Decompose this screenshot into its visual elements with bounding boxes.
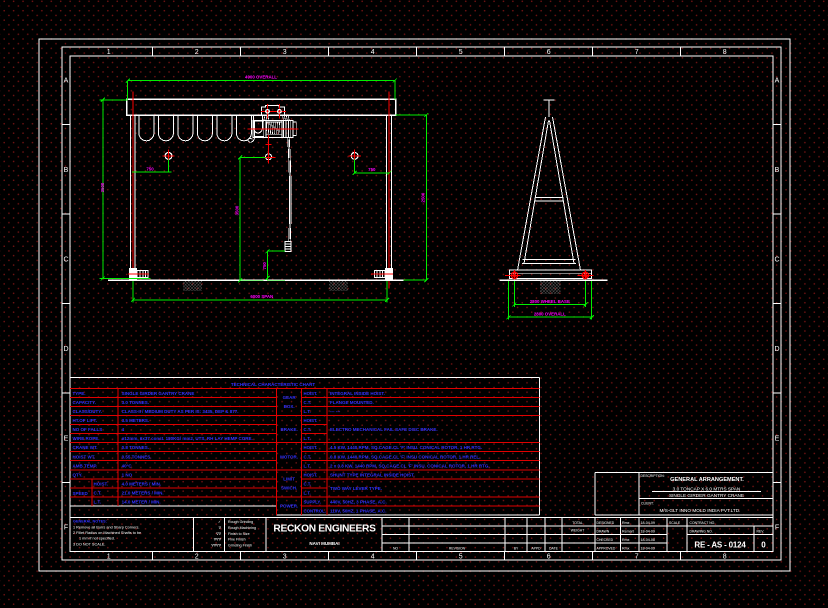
svg-text:7: 7 (635, 554, 639, 561)
svg-text:3.0 TONCAP X 6.0 MTRS SPAN: 3.0 TONCAP X 6.0 MTRS SPAN (673, 486, 741, 491)
svg-text:MOTOR.: MOTOR. (280, 454, 298, 459)
svg-text:C.T.: C.T. (304, 481, 312, 486)
svg-text:B: B (64, 167, 69, 174)
svg-text:NAVI MUMBAI: NAVI MUMBAI (309, 541, 339, 546)
svg-text:2800 WHEEL BASE: 2800 WHEEL BASE (530, 299, 570, 304)
svg-text:Fine Finish: Fine Finish (228, 538, 246, 542)
svg-text:2 x 0.8 KW, 1440 RPM, SQ.CAGE.: 2 x 0.8 KW, 1440 RPM, SQ.CAGE.CL 'F' INS… (330, 463, 490, 468)
svg-text:DESIGNED: DESIGNED (597, 521, 615, 525)
svg-text:3500: 3500 (235, 205, 240, 215)
svg-text:SINGLE GIRDER GANTRY CRANE: SINGLE GIRDER GANTRY CRANE (669, 493, 744, 498)
svg-text:SUPPLY.: SUPPLY. (304, 500, 322, 505)
svg-text:HOIST WT.: HOIST WT. (73, 454, 96, 459)
svg-text:21.0 METERS / MIN.: 21.0 METERS / MIN. (122, 490, 164, 495)
svg-text:APPD: APPD (531, 547, 541, 551)
svg-text:8: 8 (723, 554, 727, 561)
svg-text:INTEGRAL INSIDE HOIST.: INTEGRAL INSIDE HOIST. (330, 391, 385, 396)
svg-text:NO OF FALLS: NO OF FALLS (73, 427, 103, 432)
svg-text:CHECKED: CHECKED (597, 538, 614, 542)
svg-text:2: 2 (195, 554, 199, 561)
svg-text:LIMIT: LIMIT (283, 476, 295, 481)
svg-text:18-04-09: 18-04-09 (641, 521, 655, 525)
svg-text:110V, 50HZ, 1 PHASE, A.C.: 110V, 50HZ, 1 PHASE, A.C. (330, 509, 386, 514)
svg-text:✓: ✓ (218, 520, 221, 524)
svg-text:18-04-09: 18-04-09 (641, 529, 655, 533)
svg-text:1 Remove all Burrs and Sharp: 1 Remove all Burrs and Sharp Corners. (73, 526, 139, 530)
svg-text:8: 8 (723, 49, 727, 56)
svg-text:2500: 2500 (421, 192, 426, 202)
svg-text:E: E (775, 435, 780, 442)
svg-text:DRAWN: DRAWN (597, 529, 610, 533)
svg-text:1: 1 (107, 49, 111, 56)
svg-text:14.0 METER / MIN.: 14.0 METER / MIN. (122, 500, 161, 505)
svg-text:3: 3 (283, 49, 287, 56)
svg-text:CAPACITY.: CAPACITY. (73, 400, 96, 405)
svg-text:SCALE: SCALE (669, 521, 681, 525)
svg-text:C: C (774, 257, 779, 264)
svg-text:Rough Machining: Rough Machining (228, 526, 256, 530)
svg-text:BY: BY (514, 547, 519, 551)
svg-text:3.5 METERS.: 3.5 METERS. (122, 418, 150, 423)
svg-text:C.T.: C.T. (304, 400, 312, 405)
svg-text:M/S-GLT INNO MOLD INDIA PVT.LT: M/S-GLT INNO MOLD INDIA PVT.LTD. (659, 508, 740, 513)
svg-text:C: C (63, 257, 68, 264)
svg-text:Remart: Remart (622, 529, 634, 533)
svg-text:FLANGE MOUNTED.: FLANGE MOUNTED. (330, 400, 374, 405)
svg-text:L.T.: L.T. (304, 463, 311, 468)
svg-text:4900 OVERALL: 4900 OVERALL (245, 75, 277, 80)
svg-text:HOIST.: HOIST. (304, 418, 318, 423)
svg-text:CONTRACT NO.: CONTRACT NO. (690, 521, 716, 525)
svg-text:--- ---: --- --- (330, 409, 341, 414)
svg-text:CLASS/DUTY.: CLASS/DUTY. (73, 409, 103, 414)
svg-text:4.5 KW, 1440 RPM, SQ.CAGE.CL ': 4.5 KW, 1440 RPM, SQ.CAGE.CL 'F' INSU. C… (330, 445, 482, 450)
svg-text:A: A (64, 78, 69, 85)
svg-text:440V, 50HZ, 3 PHASE, A.C.: 440V, 50HZ, 3 PHASE, A.C. (330, 500, 387, 505)
svg-text:AMB TEMP.: AMB TEMP. (73, 463, 98, 468)
svg-text:BOX.: BOX. (284, 404, 295, 409)
svg-text:18-04-09: 18-04-09 (641, 547, 655, 551)
svg-text:TOTAL: TOTAL (572, 521, 583, 525)
svg-text:750: 750 (368, 167, 376, 172)
svg-text:DRAWING NO.: DRAWING NO. (690, 529, 713, 533)
svg-text:HT.OF LIFT.: HT.OF LIFT. (73, 418, 98, 423)
svg-text:1: 1 (107, 554, 111, 561)
svg-text:HOIST.: HOIST. (304, 445, 318, 450)
svg-text:RECKON ENGINEERS: RECKON ENGINEERS (273, 524, 376, 535)
svg-text:C.T.: C.T. (304, 454, 312, 459)
svg-text:0: 0 (761, 541, 766, 550)
svg-text:2: 2 (195, 49, 199, 56)
svg-text:0.8 KW, 1440 RPM, SQ.CAGE.CL ': 0.8 KW, 1440 RPM, SQ.CAGE.CL 'F' INSU CO… (330, 454, 480, 459)
svg-text:GENERAL ARRANGEMENT.: GENERAL ARRANGEMENT. (670, 477, 744, 483)
svg-text:WEIGHT: WEIGHT (571, 529, 585, 533)
svg-text:QTY.: QTY. (73, 472, 83, 477)
svg-text:6: 6 (547, 554, 551, 561)
svg-text:∇: ∇ (218, 526, 222, 530)
svg-text:GENERAL NOTES:: GENERAL NOTES: (73, 520, 107, 524)
svg-text:6: 6 (547, 49, 551, 56)
svg-text:D: D (63, 346, 68, 353)
svg-text:F: F (64, 525, 68, 532)
svg-text:3 DO NOT SCALE.: 3 DO NOT SCALE. (73, 542, 105, 546)
svg-text:18-04-08: 18-04-08 (641, 538, 655, 542)
svg-text:REVISION: REVISION (449, 547, 466, 551)
svg-text:40°C: 40°C (122, 463, 133, 468)
svg-text:750: 750 (146, 166, 154, 171)
svg-text:1 NO: 1 NO (122, 472, 133, 477)
svg-text:GEAR: GEAR (283, 395, 297, 400)
svg-text:Rough Grinding: Rough Grinding (228, 520, 253, 524)
svg-text:APPROVED: APPROVED (597, 547, 616, 551)
svg-text:HOIST.: HOIST. (94, 481, 109, 486)
svg-text:POWER.: POWER. (280, 504, 298, 509)
svg-text:A: A (775, 78, 780, 85)
svg-text:750: 750 (262, 262, 267, 270)
svg-text:2800 OVERALL: 2800 OVERALL (534, 312, 566, 317)
svg-text:5: 5 (459, 554, 463, 561)
svg-text:CLIENT:: CLIENT: (641, 501, 654, 505)
svg-text:4: 4 (371, 554, 375, 561)
svg-text:D: D (774, 346, 779, 353)
svg-text:3500: 3500 (100, 182, 105, 192)
svg-text:Grinding Finish: Grinding Finish (228, 543, 252, 547)
svg-text:3.0 TONNES.: 3.0 TONNES. (122, 400, 149, 405)
svg-text:0.8 TONNES.: 0.8 TONNES. (122, 445, 149, 450)
svg-text:0.55 TONNES.: 0.55 TONNES. (122, 454, 152, 459)
svg-text:L.T.: L.T. (94, 500, 102, 505)
svg-text:1 mm if not specified.: 1 mm if not specified. (79, 537, 115, 541)
svg-text:NO: NO (393, 547, 398, 551)
svg-text:TWO WAY LEVER TYPE.: TWO WAY LEVER TYPE. (330, 486, 382, 491)
svg-text:7: 7 (635, 49, 639, 56)
svg-text:TECHNICAL CHARACTERISTIC CHART: TECHNICAL CHARACTERISTIC CHART (231, 382, 315, 387)
svg-text:6000 SPAN: 6000 SPAN (250, 294, 273, 299)
svg-text:DESCRIPTION:: DESCRIPTION: (641, 474, 665, 478)
svg-text:3: 3 (283, 554, 287, 561)
svg-text:BRAKE.: BRAKE. (280, 427, 297, 432)
svg-text:SPEED: SPEED (73, 491, 89, 496)
svg-text:∇∇∇∇: ∇∇∇∇ (210, 543, 221, 547)
svg-text:TYPE.: TYPE. (73, 391, 86, 396)
svg-text:CONTROL.: CONTROL. (304, 509, 326, 514)
svg-text:CLASS-II / MEDIUM DUTY AS PER: CLASS-II / MEDIUM DUTY AS PER IS: 3435, … (122, 409, 239, 414)
svg-text:2 Fillet Radius on Machined: 2 Fillet Radius on Machined Shafts to be (73, 531, 141, 535)
svg-text:Rmx: Rmx (622, 547, 630, 551)
svg-text:5: 5 (459, 49, 463, 56)
svg-text:ø12mm, 6x37 const. 180KG/ mm2,: ø12mm, 6x37 const. 180KG/ mm2, UTS, RH L… (122, 436, 253, 441)
svg-text:B: B (775, 167, 780, 174)
svg-text:C.T.: C.T. (304, 427, 312, 432)
svg-text:SINGLE GIRDER GANTRY CRANE: SINGLE GIRDER GANTRY CRANE (122, 391, 195, 396)
svg-text:CRANE WT.: CRANE WT. (73, 445, 98, 450)
svg-text:∇∇∇: ∇∇∇ (213, 538, 222, 542)
svg-text:HOIST.: HOIST. (304, 391, 318, 396)
svg-text:WIRE ROPE.: WIRE ROPE. (73, 436, 100, 441)
svg-text:L.T.: L.T. (304, 436, 311, 441)
svg-text:Finish to Size: Finish to Size (228, 532, 250, 536)
svg-text:SHUNT TYPE INTEGRAL INSIDE HOI: SHUNT TYPE INTEGRAL INSIDE HOIST. (330, 472, 415, 477)
svg-text:E: E (64, 435, 69, 442)
svg-text:HOIST.: HOIST. (304, 472, 318, 477)
svg-text:REV.: REV. (757, 529, 765, 533)
svg-text:Rmx: Rmx (622, 521, 630, 525)
svg-text:C.T.: C.T. (94, 490, 102, 495)
svg-text:L.T.: L.T. (304, 409, 311, 414)
svg-text:ELECTRO MECHANICAL FAIL SAFE D: ELECTRO MECHANICAL FAIL SAFE DISC BRAKE. (330, 427, 438, 432)
svg-text:4.0 METERS / MIN.: 4.0 METERS / MIN. (122, 481, 162, 486)
svg-text:F: F (775, 525, 779, 532)
svg-text:∇∇: ∇∇ (215, 532, 221, 536)
svg-text:4: 4 (371, 49, 375, 56)
svg-text:RE - AS - 0124: RE - AS - 0124 (694, 541, 746, 550)
svg-text:L.T.: L.T. (304, 490, 311, 495)
svg-text:DATE: DATE (549, 547, 559, 551)
svg-text:SWICH.: SWICH. (281, 485, 297, 490)
svg-text:Rmx: Rmx (622, 538, 630, 542)
